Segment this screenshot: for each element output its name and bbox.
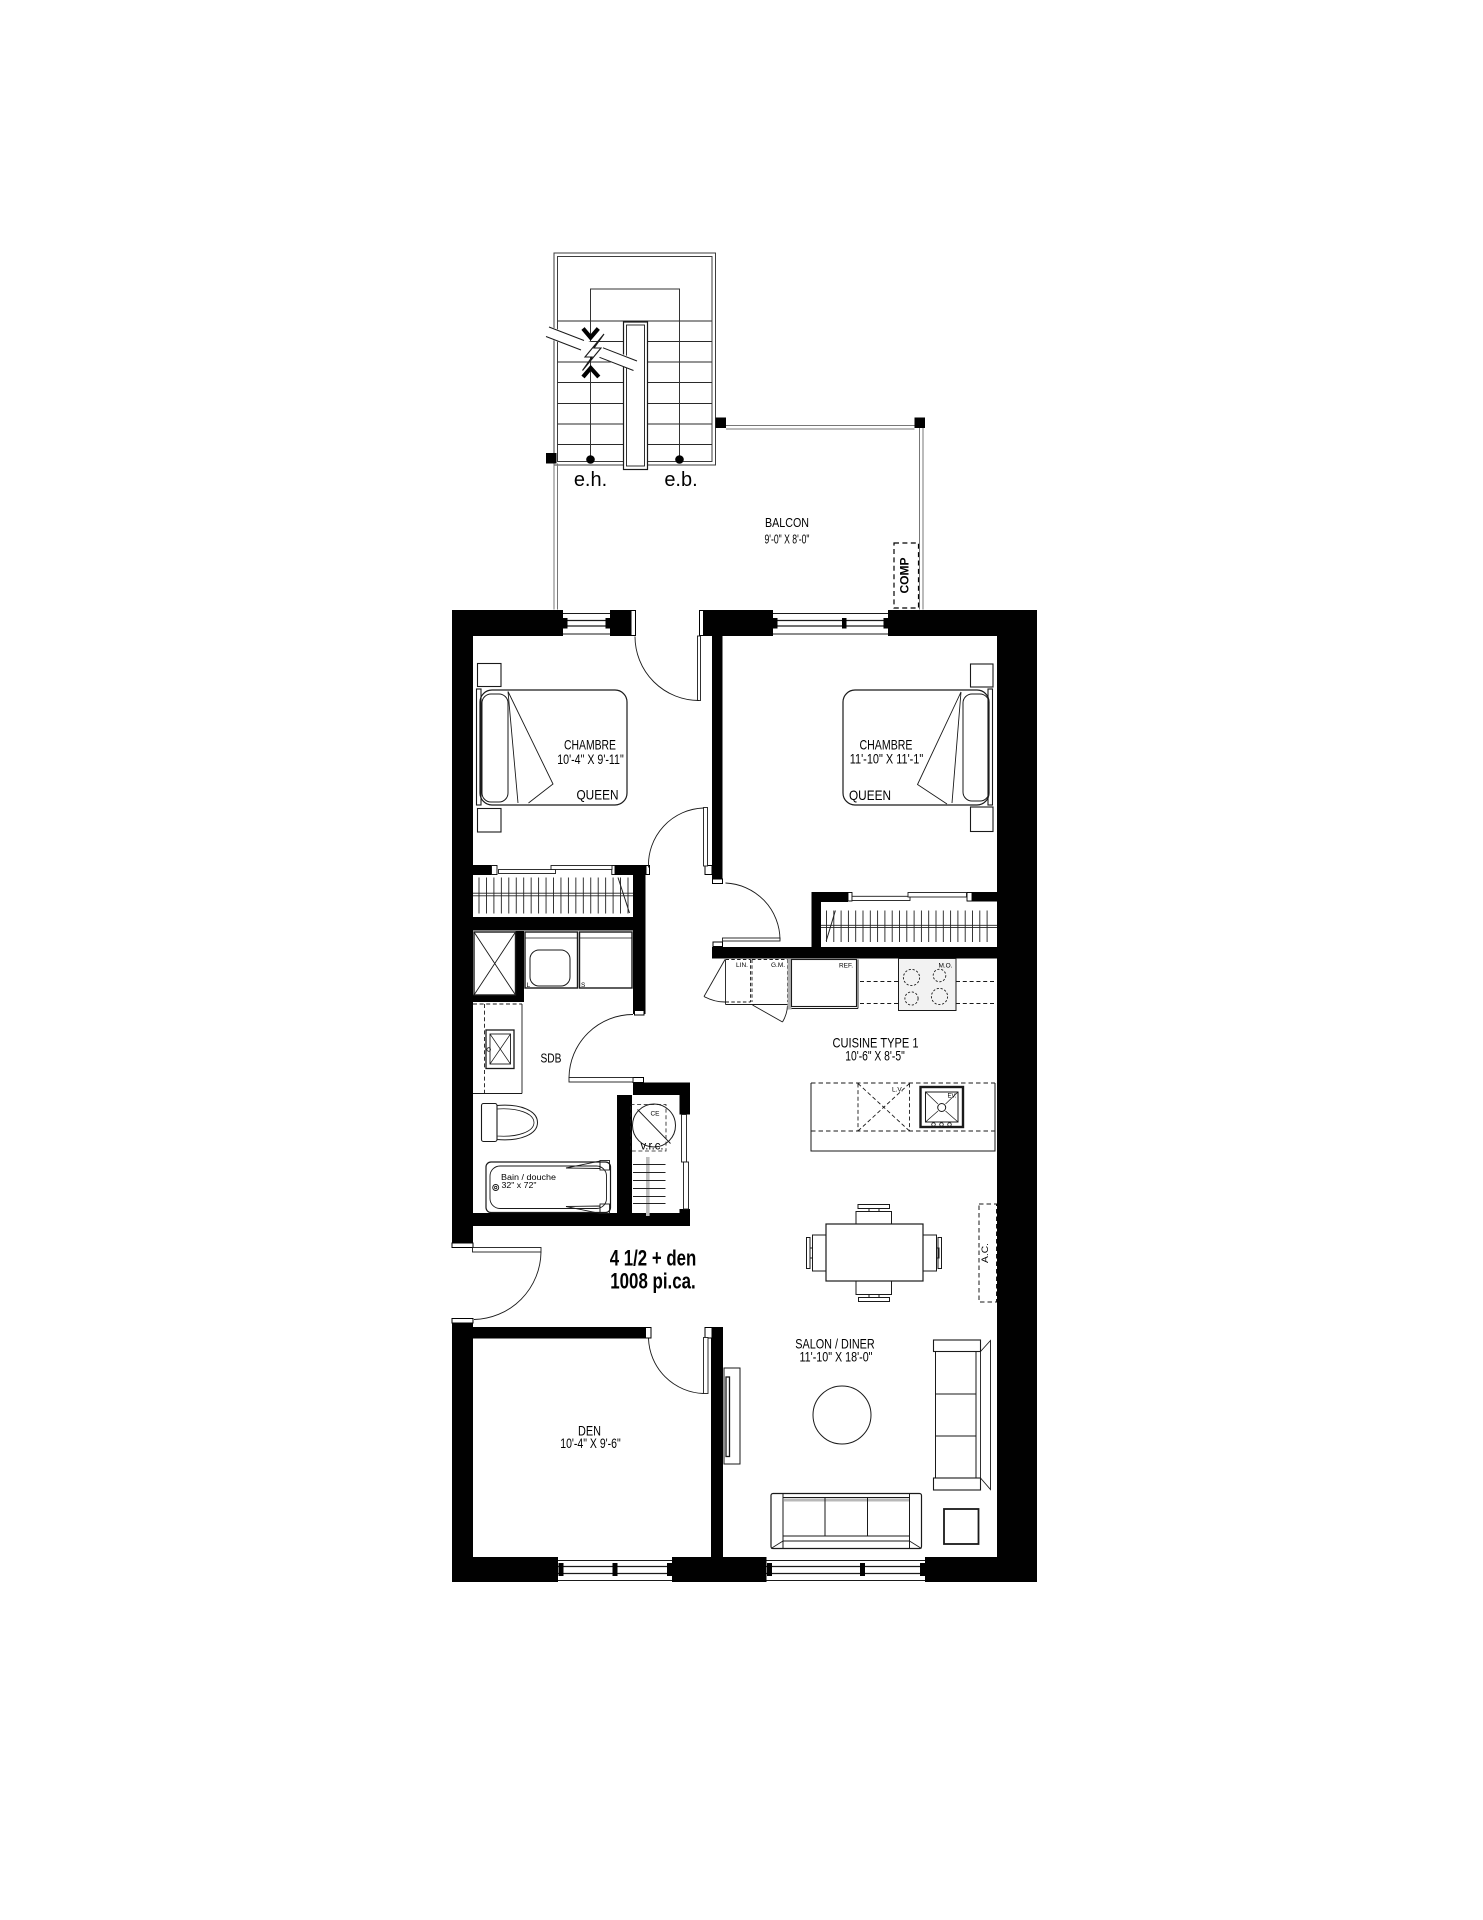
svg-text:G.M.: G.M. [771, 962, 785, 969]
svg-text:10'-4" X 9'-6": 10'-4" X 9'-6" [560, 1435, 621, 1451]
svg-text:11'-10" X 11'-1": 11'-10" X 11'-1" [850, 751, 924, 767]
svg-text:v.r.c.: v.r.c. [641, 1141, 664, 1153]
svg-text:e.h.: e.h. [574, 469, 607, 491]
svg-text:REF.: REF. [839, 963, 853, 970]
svg-text:10'-6" X 8'-5": 10'-6" X 8'-5" [845, 1048, 905, 1064]
svg-text:11'-10" X 18'-0": 11'-10" X 18'-0" [800, 1349, 873, 1365]
svg-text:COMP: COMP [900, 557, 912, 593]
svg-text:L.V.: L.V. [892, 1087, 903, 1094]
svg-text:M.O.: M.O. [938, 963, 952, 970]
svg-text:A.C.: A.C. [980, 1243, 991, 1263]
svg-text:QUEEN: QUEEN [849, 787, 891, 803]
svg-text:L: L [527, 982, 531, 989]
svg-text:QUEEN: QUEEN [577, 787, 619, 803]
svg-text:1008 pi.ca.: 1008 pi.ca. [610, 1269, 696, 1294]
svg-text:LIN.: LIN. [736, 962, 748, 969]
svg-text:CE: CE [650, 1111, 660, 1118]
svg-text:e.b.: e.b. [664, 469, 697, 491]
svg-text:4 1/2 + den: 4 1/2 + den [610, 1246, 697, 1271]
svg-text:S: S [581, 982, 586, 989]
svg-text:10'-4" X 9'-11": 10'-4" X 9'-11" [557, 751, 624, 767]
svg-text:SDB: SDB [541, 1051, 562, 1066]
svg-text:BALCON: BALCON [765, 516, 809, 530]
svg-text:9'-0" X 8'-0": 9'-0" X 8'-0" [765, 533, 810, 547]
svg-text:32" x 72": 32" x 72" [502, 1181, 537, 1190]
svg-text:EV.: EV. [947, 1094, 956, 1100]
